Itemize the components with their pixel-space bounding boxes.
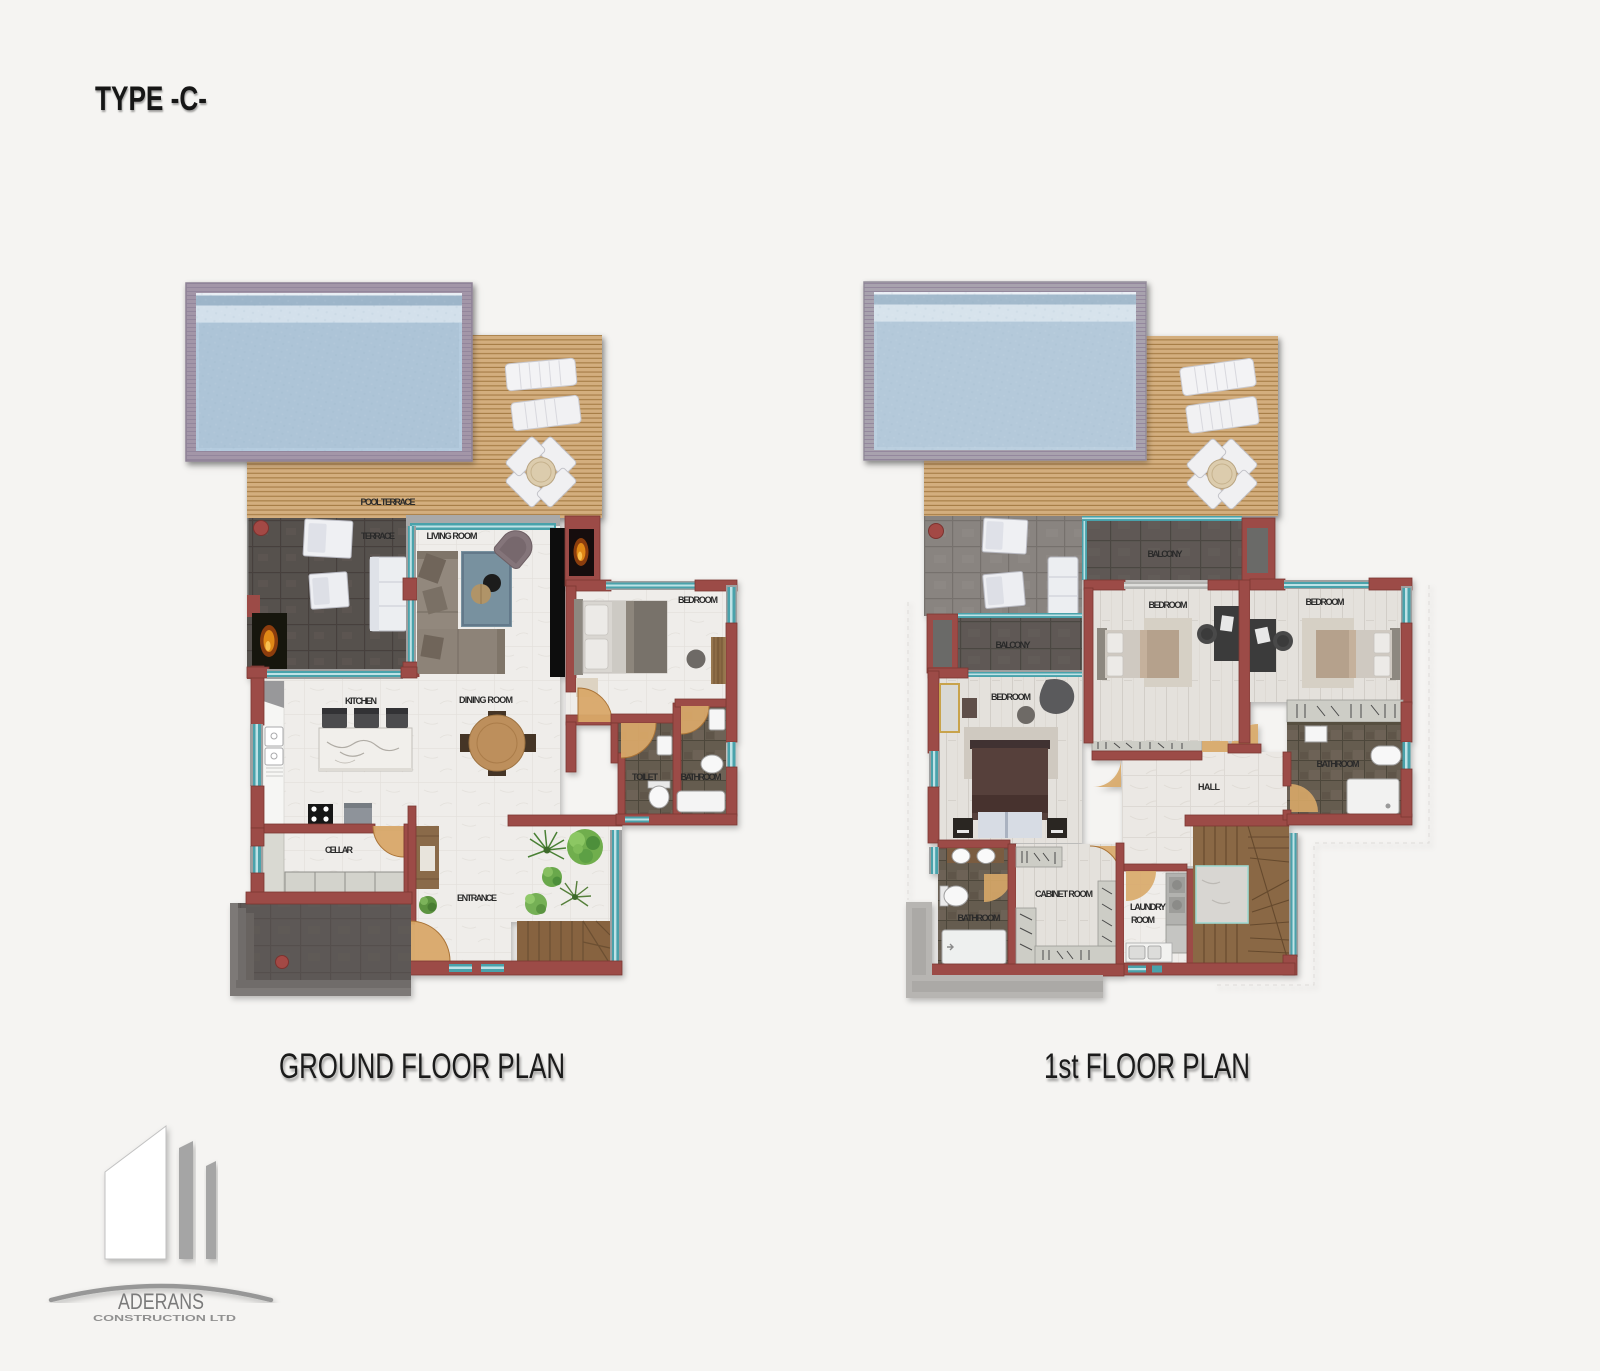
svg-text:BATHROOM: BATHROOM xyxy=(681,772,722,782)
svg-text:BEDROOM: BEDROOM xyxy=(678,595,718,605)
svg-text:BALCONY: BALCONY xyxy=(1148,549,1183,559)
svg-text:BATHROOM: BATHROOM xyxy=(958,913,1001,923)
svg-text:BALCONY: BALCONY xyxy=(996,640,1031,650)
svg-text:TOILET: TOILET xyxy=(632,772,659,782)
svg-text:BEDROOM: BEDROOM xyxy=(991,692,1031,702)
svg-text:GROUND FLOOR PLAN: GROUND FLOOR PLAN xyxy=(279,1047,565,1086)
svg-text:HALL: HALL xyxy=(1198,782,1221,792)
svg-text:LIVING ROOM: LIVING ROOM xyxy=(427,531,478,541)
svg-text:TERRACE: TERRACE xyxy=(361,531,395,541)
svg-text:TYPE -C-: TYPE -C- xyxy=(95,80,207,118)
svg-text:ROOM: ROOM xyxy=(1131,915,1155,925)
svg-text:BATHROOM: BATHROOM xyxy=(1317,759,1360,769)
svg-text:DINING ROOM: DINING ROOM xyxy=(459,695,513,705)
svg-text:CELLAR: CELLAR xyxy=(325,845,354,855)
svg-text:KITCHEN: KITCHEN xyxy=(345,696,377,706)
svg-text:BEDROOM: BEDROOM xyxy=(1149,600,1188,610)
svg-text:POOL TERRACE: POOL TERRACE xyxy=(361,497,416,507)
svg-text:BEDROOM: BEDROOM xyxy=(1306,597,1345,607)
svg-text:1st FLOOR PLAN: 1st FLOOR PLAN xyxy=(1044,1047,1250,1086)
svg-text:ENTRANCE: ENTRANCE xyxy=(457,893,497,903)
svg-text:LAUNDRY: LAUNDRY xyxy=(1130,902,1166,912)
svg-text:CONSTRUCTION LTD: CONSTRUCTION LTD xyxy=(93,1313,236,1323)
svg-text:ADERANS: ADERANS xyxy=(118,1289,204,1314)
svg-text:CABINET ROOM: CABINET ROOM xyxy=(1035,889,1093,899)
